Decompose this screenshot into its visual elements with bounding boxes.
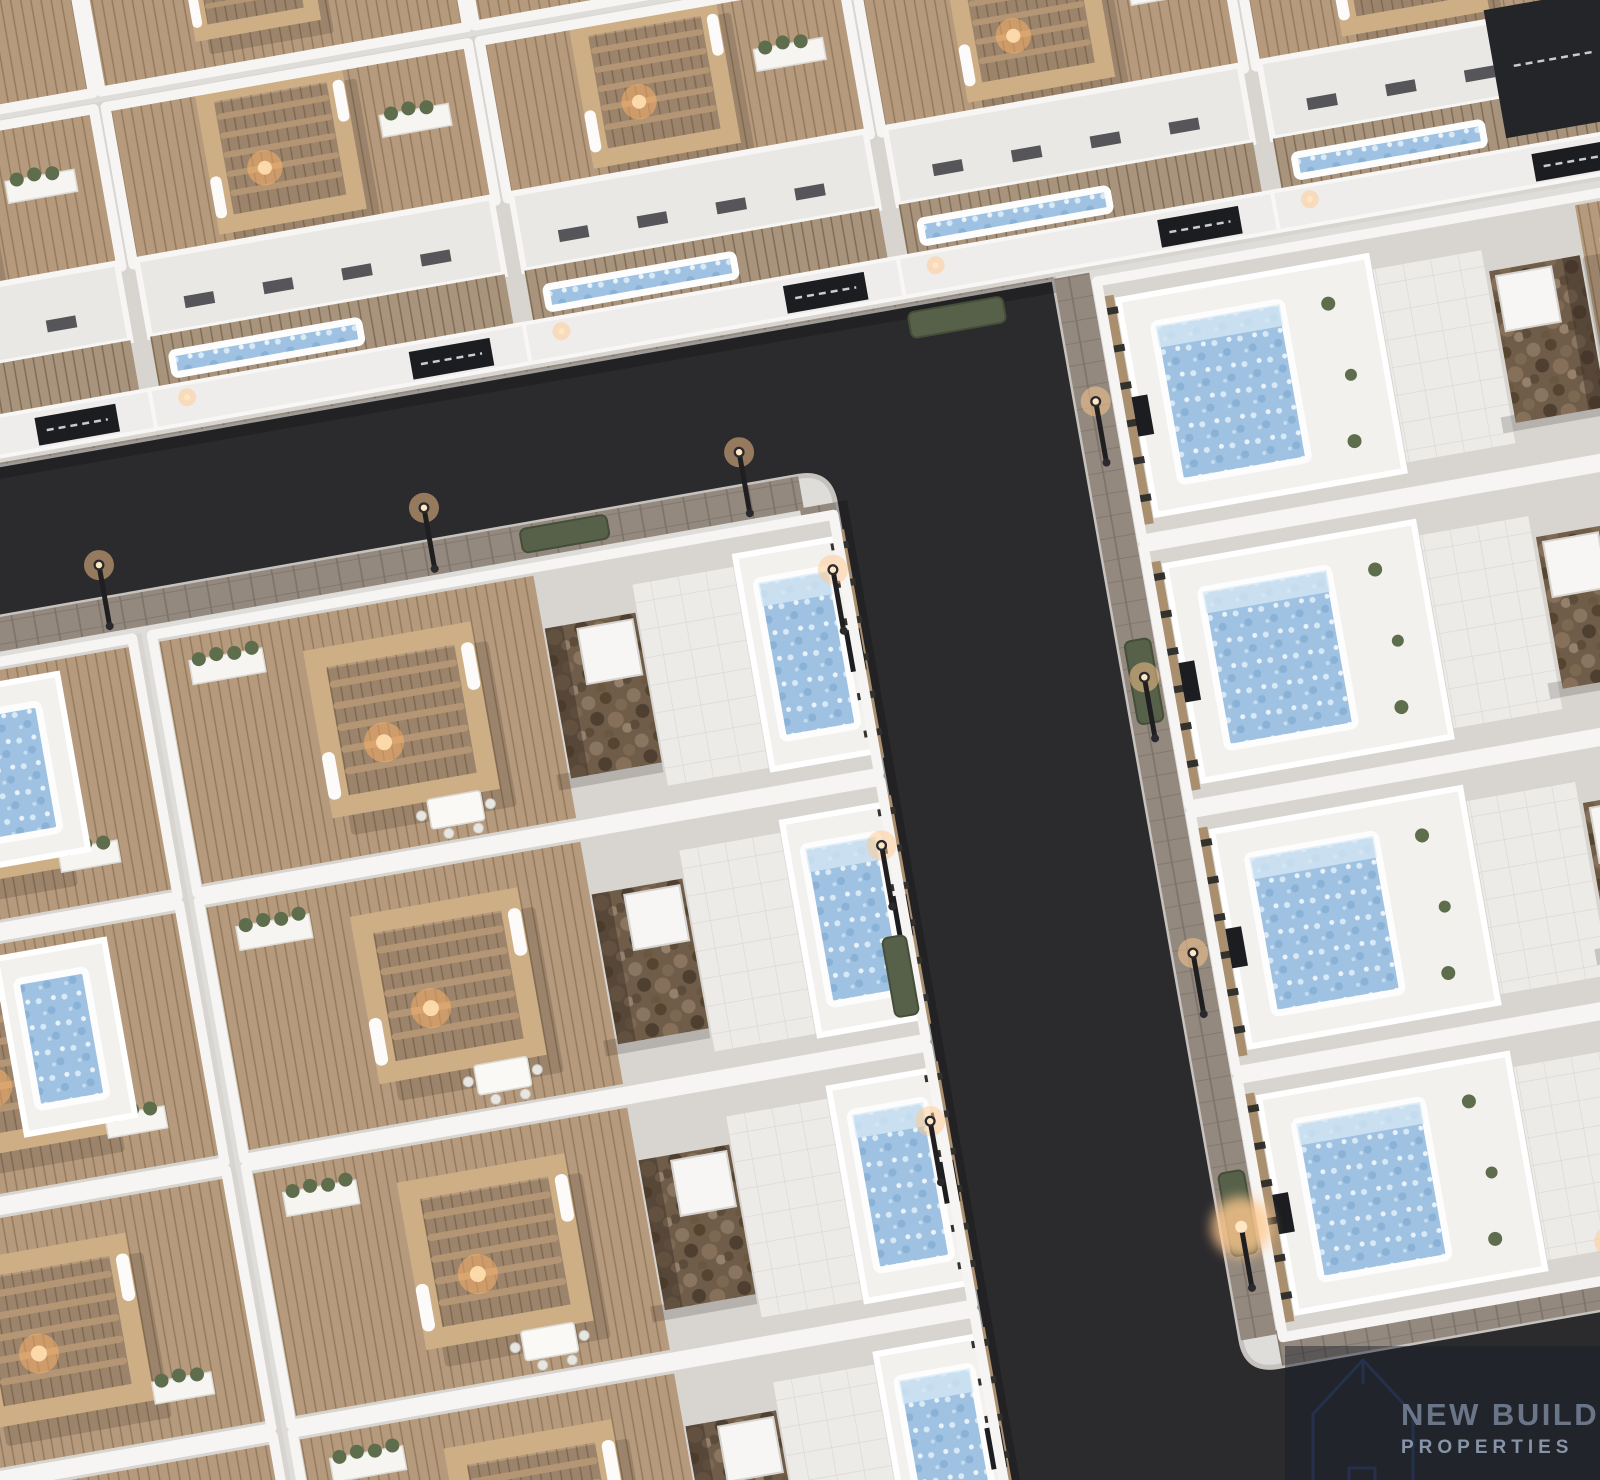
villa-development-illustration — [0, 0, 1600, 1480]
watermark-text: NEW BUILD PROPERTIES — [1401, 1398, 1599, 1459]
watermark-badge: NEW BUILD PROPERTIES — [1285, 1346, 1600, 1480]
villa-unit — [0, 1165, 282, 1480]
brand-name: NEW BUILD — [1401, 1398, 1599, 1432]
development-grid — [0, 0, 1600, 1480]
brand-subtitle: PROPERTIES — [1401, 1438, 1599, 1459]
villa-unit — [473, 0, 906, 369]
villa-unit — [99, 36, 532, 435]
aerial-render-scene: NEW BUILD PROPERTIES — [0, 0, 1600, 1480]
